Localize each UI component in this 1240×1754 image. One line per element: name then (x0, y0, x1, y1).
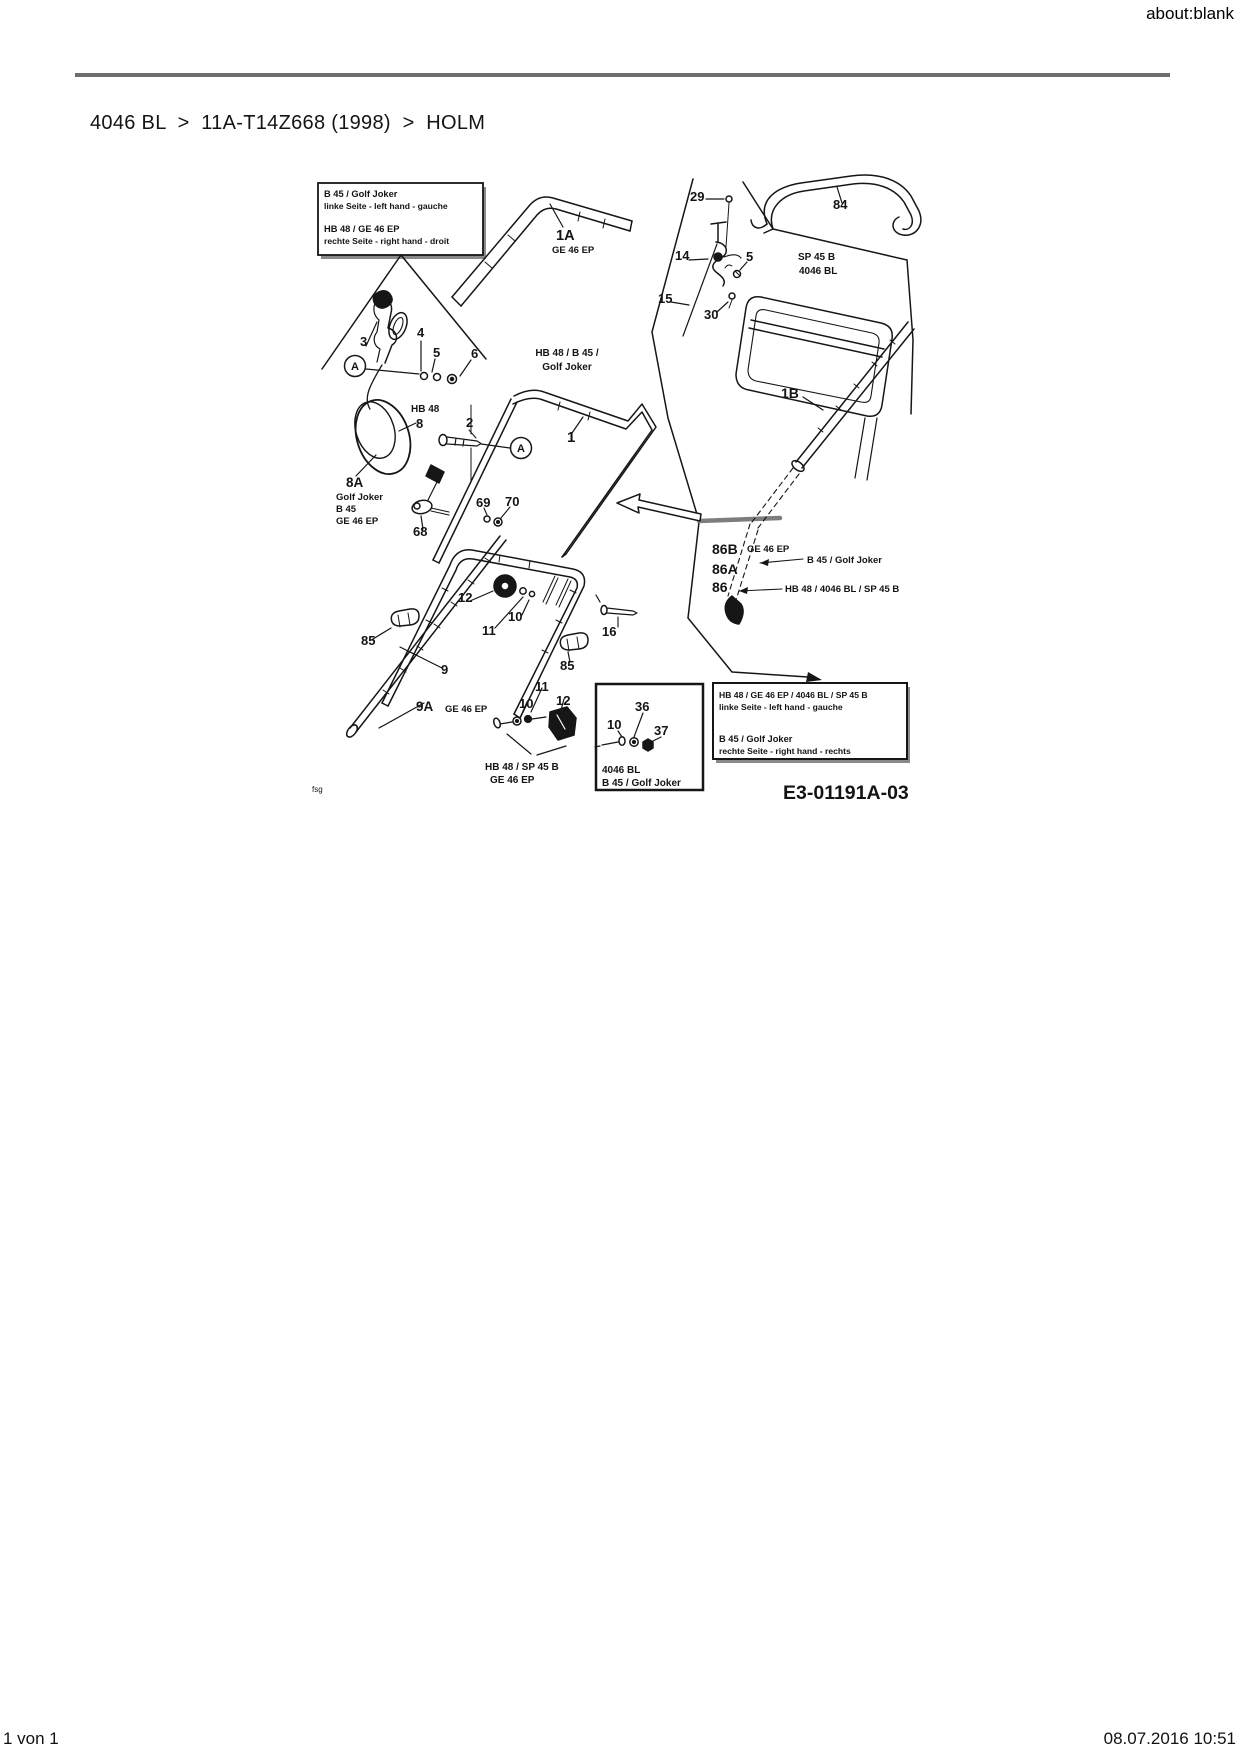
part-label-6: 6 (471, 346, 478, 361)
infobox-left-line-1: B 45 / Golf Joker (324, 189, 398, 199)
model-label-golf-joker-8a: Golf Joker (336, 492, 383, 503)
part-label-9a: 9A (416, 699, 434, 714)
part-label-10-upper: 10 (508, 609, 522, 624)
part-label-1b: 1B (781, 385, 799, 401)
part-label-11-upper: 11 (482, 623, 496, 638)
model-label-hb48-sp45b: HB 48 / SP 45 B (485, 762, 559, 773)
infobox-right-line-2: linke Seite - left hand - gauche (719, 702, 843, 712)
page-number: 1 von 1 (3, 1729, 59, 1749)
bail-loop-drawing (347, 393, 420, 481)
part-label-36: 36 (635, 699, 649, 714)
part-label-37: 37 (654, 723, 668, 738)
infobox-left-line-2: linke Seite - left hand - gauche (324, 201, 448, 211)
model-label-ge46ep-9a: GE 46 EP (445, 704, 488, 715)
model-label-b45-8a: B 45 (336, 504, 357, 515)
part-16-drawing (596, 595, 637, 627)
model-label-hb48: HB 48 (411, 404, 440, 415)
part-label-2: 2 (466, 415, 473, 430)
sheet-arrowhead (806, 672, 822, 682)
part-label-29: 29 (690, 189, 704, 204)
infobox-left-line-3: HB 48 / GE 46 EP (324, 224, 399, 234)
print-header-url: about:blank (1146, 4, 1234, 24)
model-label-sp45b: SP 45 B (798, 252, 835, 263)
part-30-drawing (717, 293, 735, 312)
parts-diagram: B 45 / Golf Jokerlinke Seite - left hand… (280, 150, 940, 810)
detail-marker-a-left: A (351, 361, 359, 373)
part-label-10-lower: 10 (519, 696, 533, 711)
part-label-30: 30 (704, 307, 718, 322)
part-label-84: 84 (833, 197, 848, 212)
model-label-ge46ep-86b: GE 46 EP (747, 544, 790, 555)
model-label-ge46ep-8a: GE 46 EP (336, 516, 379, 527)
part-label-4: 4 (417, 325, 425, 340)
part-label-68: 68 (413, 524, 427, 539)
part-label-15: 15 (658, 291, 672, 306)
part-label-5-right: 5 (746, 249, 753, 264)
part-label-9: 9 (441, 662, 448, 677)
part-label-85-left: 85 (361, 633, 375, 648)
infobox-left-line-4: rechte Seite - right hand - droit (324, 236, 449, 246)
part-label-86b: 86B (712, 541, 738, 557)
clamp-85-left-drawing (373, 609, 419, 639)
part-label-8a: 8A (346, 475, 364, 490)
model-label-b45-golf-joker-inset: B 45 / Golf Joker (602, 778, 681, 789)
infobox-right-line-1: HB 48 / GE 46 EP / 4046 BL / SP 45 B (719, 690, 868, 700)
part-label-11-lower: 11 (535, 679, 549, 694)
part-label-14: 14 (675, 248, 690, 263)
model-label-4046bl-inset: 4046 BL (602, 765, 640, 776)
model-label-4046bl: 4046 BL (799, 266, 837, 277)
part-2-drawing (439, 405, 510, 482)
part-label-69: 69 (476, 495, 490, 510)
part-label-1: 1 (567, 429, 575, 446)
model-label-b45-golf-joker-86a: B 45 / Golf Joker (807, 555, 882, 566)
part-label-12-upper: 12 (458, 590, 472, 605)
part-label-3: 3 (360, 334, 367, 349)
infobox-right-line-4: rechte Seite - right hand - rechts (719, 746, 851, 756)
part-label-70: 70 (505, 494, 519, 509)
part-label-16: 16 (602, 624, 616, 639)
model-label-golf-joker-center: Golf Joker (542, 362, 592, 373)
part-29-drawing (706, 196, 732, 247)
detail-marker-a-right: A (517, 443, 525, 455)
part-label-5-left: 5 (433, 345, 440, 360)
breadcrumb: 4046 BL > 11A-T14Z668 (1998) > HOLM (90, 112, 485, 135)
part-label-10-inset: 10 (607, 717, 621, 732)
part-5-right-drawing (725, 262, 747, 278)
model-label-hb48-4046bl-sp45b-86: HB 48 / 4046 BL / SP 45 B (785, 584, 899, 595)
part-label-86a: 86A (712, 561, 738, 577)
model-label-ge46ep-lower: GE 46 EP (490, 775, 535, 786)
header-divider (75, 73, 1170, 77)
part-label-12-lower: 12 (556, 693, 570, 708)
part-label-1a: 1A (556, 228, 575, 244)
printed-page: about:blank 4046 BL > 11A-T14Z668 (1998)… (0, 0, 1240, 1754)
part-label-8: 8 (416, 416, 423, 431)
direction-arrow (617, 494, 701, 521)
part-14-drawing (689, 222, 741, 286)
infobox-right-line-3: B 45 / Golf Joker (719, 734, 793, 744)
detail-a-assembly-drawing (366, 291, 471, 409)
part-label-86: 86 (712, 579, 728, 595)
print-timestamp: 08.07.2016 10:51 (1104, 1729, 1236, 1749)
drawing-number: E3-01191A-03 (783, 782, 909, 804)
model-label-ge46ep-1a: GE 46 EP (552, 245, 595, 256)
part-label-85-right: 85 (560, 658, 574, 673)
model-label-hb48-b45: HB 48 / B 45 / (535, 348, 599, 359)
watermark-fsg: fsg (312, 785, 323, 794)
